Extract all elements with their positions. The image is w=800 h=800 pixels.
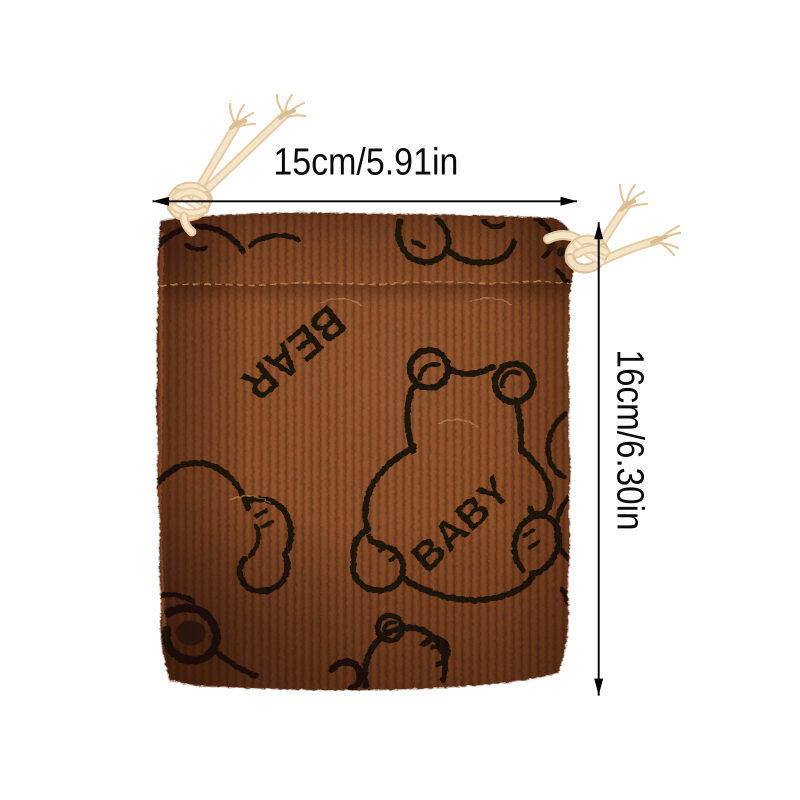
svg-text:15cm/5.91in: 15cm/5.91in bbox=[273, 142, 458, 184]
svg-text:16cm/6.30in: 16cm/6.30in bbox=[608, 350, 650, 531]
